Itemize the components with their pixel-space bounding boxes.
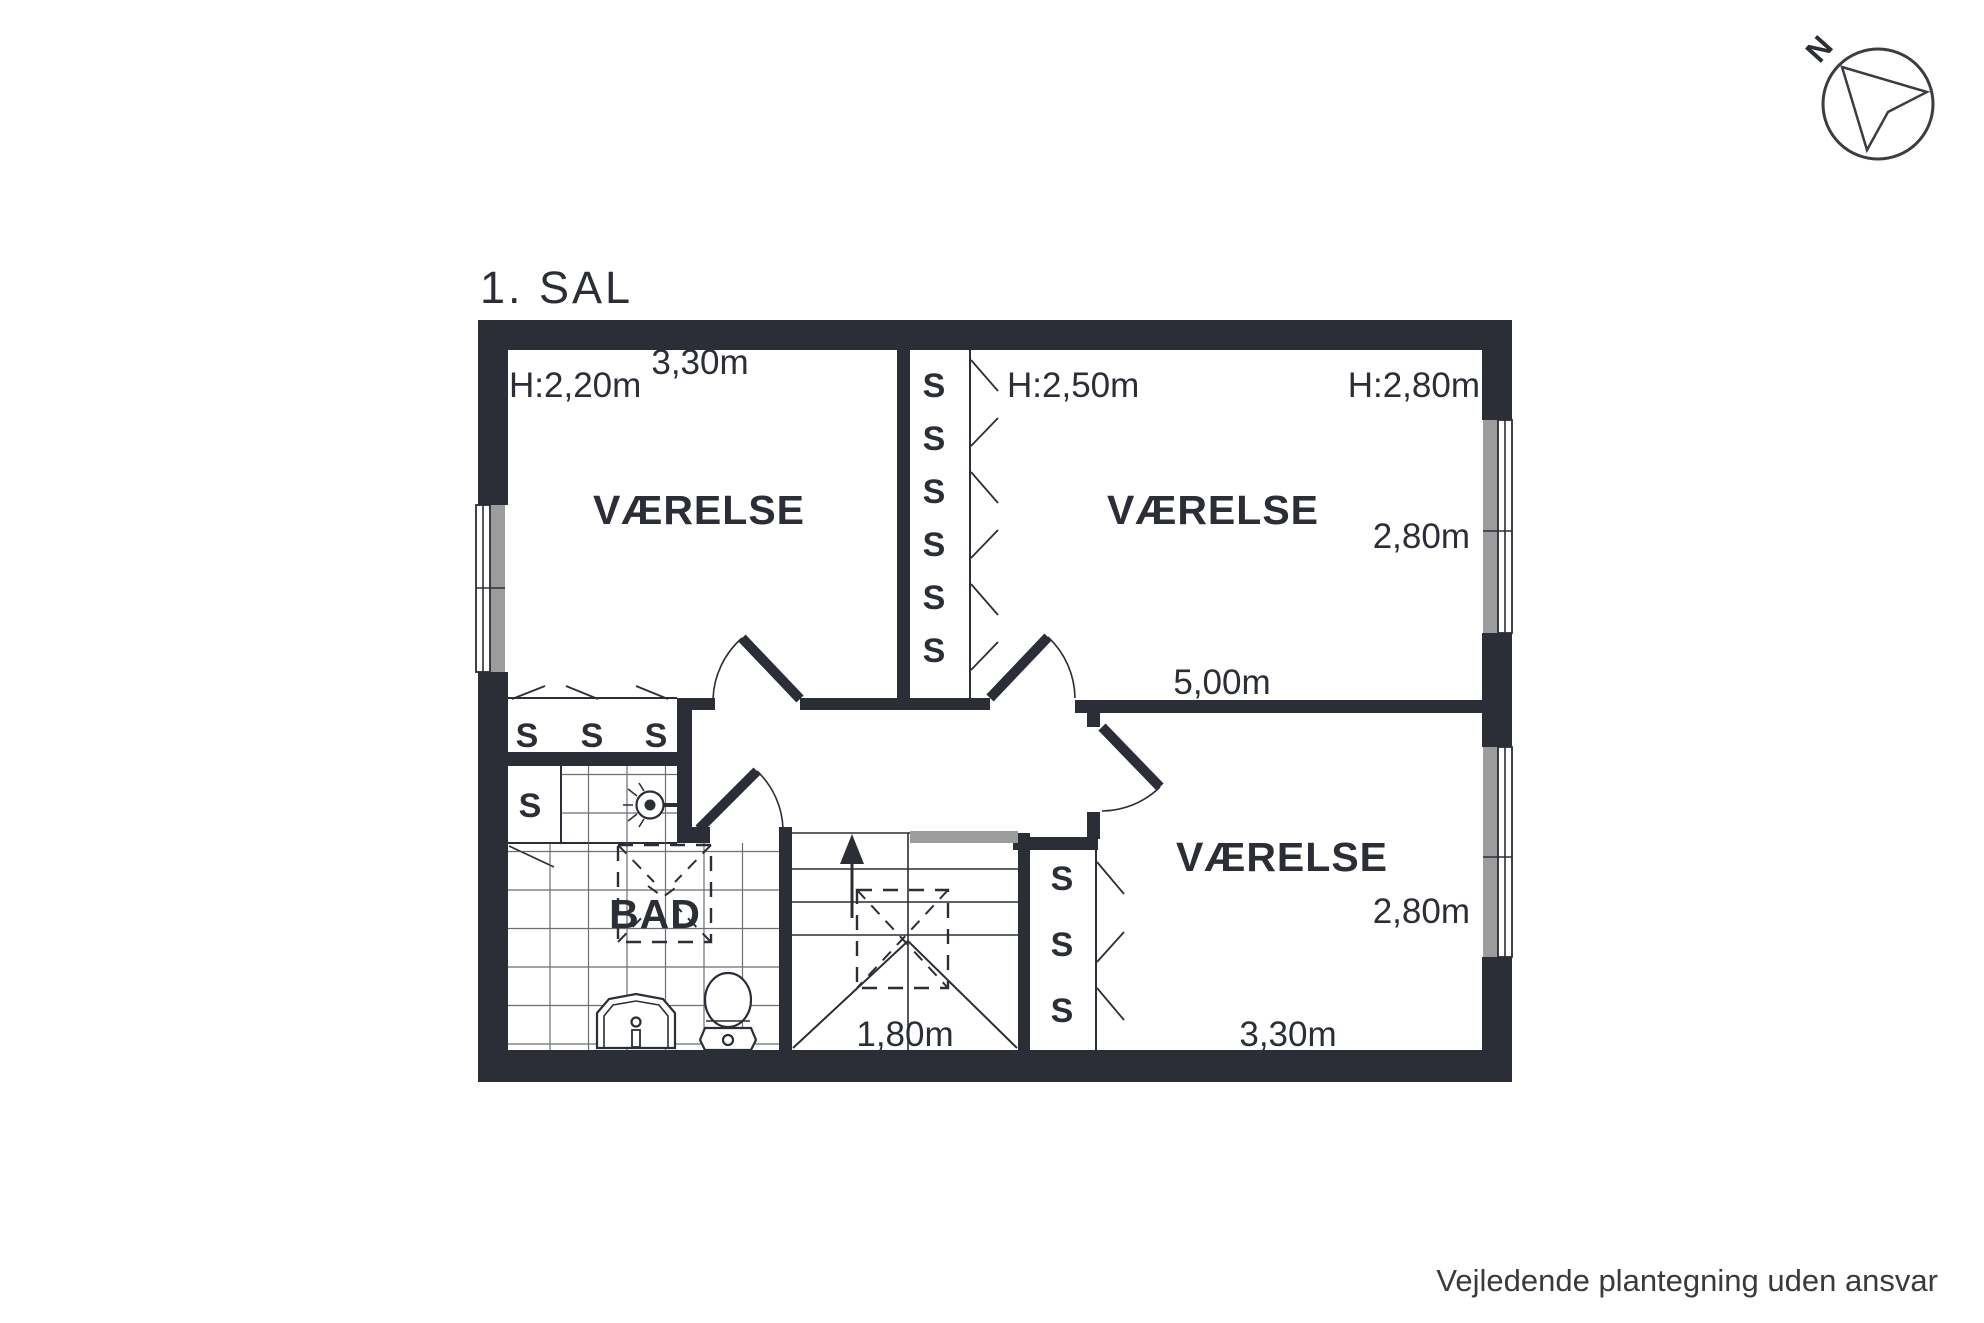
wall-door-stub-upper — [1087, 713, 1100, 727]
closet-symbol: S — [923, 367, 946, 405]
floor-plan-page: N 1. SAL H:2,20m 3,30m VÆRELSE H:2,50m H… — [0, 0, 1984, 1323]
door-room-bottom-right — [1102, 727, 1160, 811]
bathroom-label: BAD — [609, 891, 701, 937]
compass-north-label: N — [1799, 29, 1840, 69]
closet-symbol: S — [581, 717, 604, 755]
window-left — [476, 505, 505, 672]
slope-line-bathroom — [509, 846, 554, 867]
room-top-right-label: VÆRELSE — [1107, 487, 1319, 533]
disclaimer-text: Vejledende plantegning uden ansvar — [1436, 1263, 1938, 1298]
closet-symbol: S — [923, 632, 946, 670]
room-bottom-right-depth: 2,80m — [1373, 892, 1470, 931]
closet-door-ticks-bottom-right — [1097, 862, 1124, 1020]
stairs-width: 1,80m — [856, 1015, 953, 1054]
wall-room-divider-5m — [1075, 700, 1482, 713]
wall-outer-right-upper — [1482, 320, 1512, 420]
walls — [478, 320, 1512, 1082]
wall-stair-left — [779, 827, 792, 1050]
compass-icon: N — [1799, 29, 1933, 159]
closet-door-ticks-top-right — [971, 360, 998, 670]
room-bottom-right-width: 3,30m — [1239, 1015, 1336, 1054]
room-top-right-width: 5,00m — [1173, 663, 1270, 702]
closet-symbol: S — [645, 717, 668, 755]
room-top-right-depth: 2,80m — [1373, 517, 1470, 556]
wall-stair-right — [1018, 833, 1030, 1050]
room-top-left-height: H:2,20m — [509, 366, 641, 405]
window-right-bottom — [1483, 747, 1512, 957]
wall-outer-right-lower — [1482, 957, 1512, 1082]
wall-outer-bottom — [478, 1050, 1512, 1082]
stair-railing — [910, 831, 1018, 843]
closet-symbol: S — [923, 473, 946, 511]
room-bottom-right-label: VÆRELSE — [1176, 834, 1388, 880]
sink-icon — [597, 994, 675, 1048]
closet-symbol: S — [923, 579, 946, 617]
wall-bath-right — [677, 700, 692, 843]
closet-symbol: S — [923, 526, 946, 564]
wall-outer-left-lower — [478, 672, 508, 1082]
up-arrow-icon — [840, 834, 864, 918]
shower-icon — [623, 783, 680, 827]
page-title: 1. SAL — [480, 262, 633, 313]
wall-outer-left-upper — [478, 320, 508, 505]
closet-symbol: S — [1051, 992, 1074, 1030]
door-room-top-left — [713, 638, 800, 699]
closet-symbol: S — [516, 717, 539, 755]
window-right-top — [1483, 420, 1512, 633]
door-bathroom — [699, 771, 783, 829]
room-top-left-width: 3,30m — [651, 343, 748, 382]
room-top-right-height-right: H:2,80m — [1348, 366, 1480, 405]
wall-outer-top — [478, 320, 1512, 350]
room-top-right-height-left: H:2,50m — [1007, 366, 1139, 405]
north-arrow-icon — [1842, 67, 1927, 150]
closet-symbols-bottom-right: S S S — [1051, 860, 1074, 1030]
wall-door-stub-lower — [1087, 812, 1100, 839]
wall-outer-right-mid — [1482, 633, 1512, 747]
floor-plan-canvas: N 1. SAL H:2,20m 3,30m VÆRELSE H:2,50m H… — [0, 0, 1984, 1323]
wall-closet-column — [897, 350, 910, 698]
closet-symbol: S — [1051, 926, 1074, 964]
door-room-top-right — [990, 637, 1075, 698]
toilet-icon — [700, 973, 756, 1050]
closet-symbols-top-center: S S S S S S — [923, 367, 946, 670]
wall-hall-top — [800, 698, 990, 710]
closet-symbol: S — [1051, 860, 1074, 898]
room-top-left-label: VÆRELSE — [593, 487, 805, 533]
closet-symbol: S — [923, 420, 946, 458]
closet-symbol: S — [519, 787, 542, 825]
